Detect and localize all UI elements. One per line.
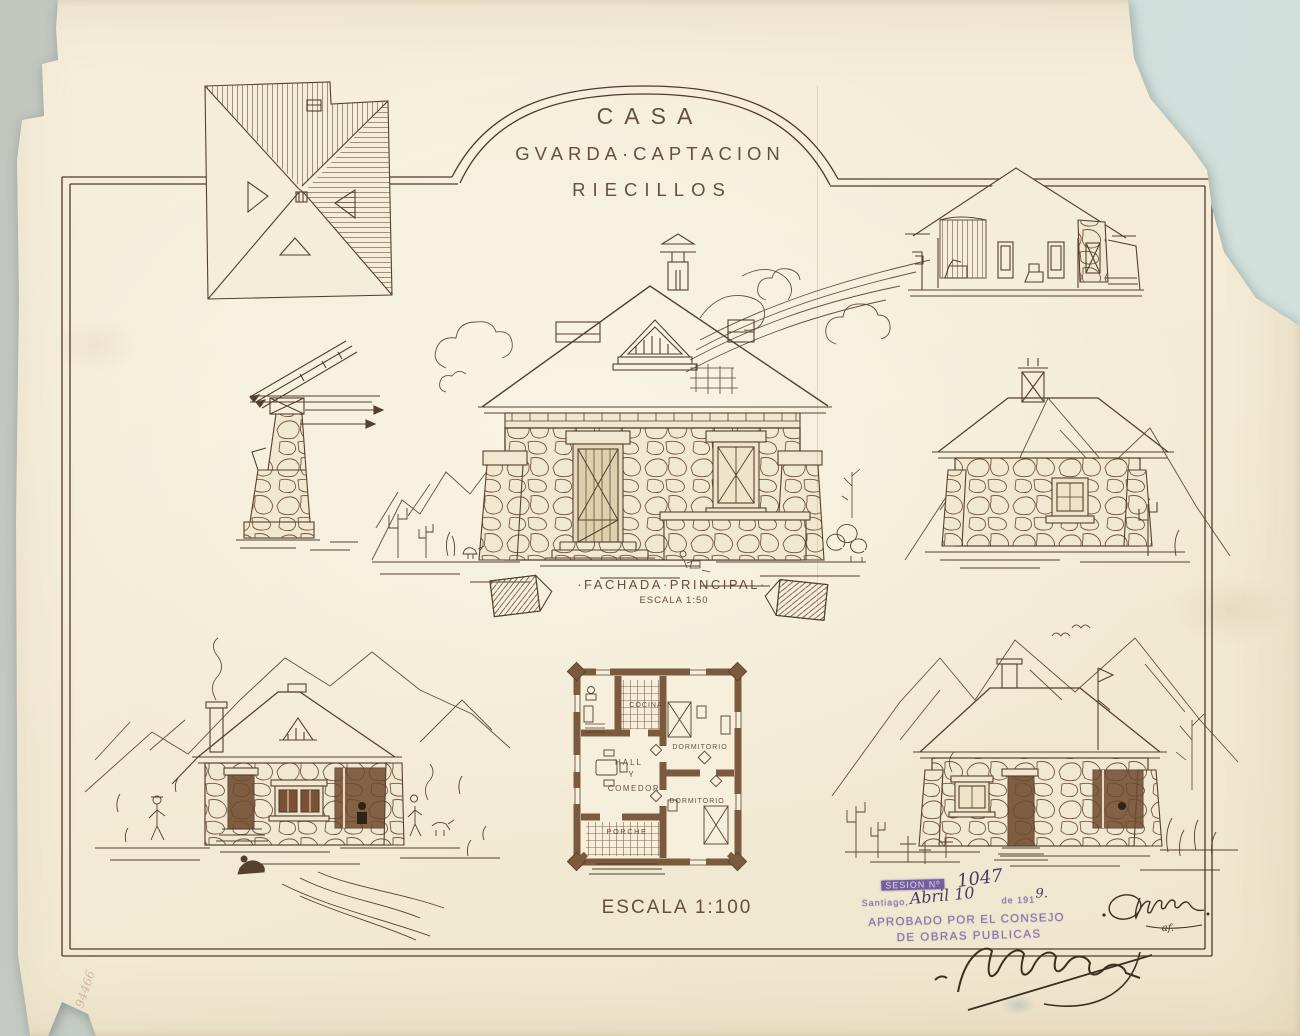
roof-plan-drawing [205, 82, 392, 299]
rear-elevation-drawing [85, 638, 510, 940]
room-label-hall-1: HALL [615, 758, 643, 767]
side-elevation-drawing [905, 358, 1230, 568]
sheet-title-line1: CASA [597, 103, 704, 130]
signature-initials-note: af. [1162, 923, 1175, 934]
room-label-kitchen: COCINA [629, 702, 662, 709]
sheet-title-line3: RIECILLOS [572, 179, 732, 201]
sheet-title-line2: GVARDA·CAPTACION [515, 143, 784, 165]
approval-signature [935, 949, 1152, 1010]
scanned-sheet: CASA GVARDA·CAPTACION RIECILLOS ·FACHADA… [0, 0, 1300, 1036]
room-label-hall-2: Y [628, 770, 633, 779]
paper-crease [817, 86, 818, 606]
stamp-approval-line1: APROBADO POR EL CONSEJO [868, 912, 1065, 929]
stamp-year-handwritten: 9. [1035, 886, 1048, 901]
architect-signature [1102, 892, 1209, 928]
stamp-year-printed: de 191 [1002, 895, 1036, 906]
room-label-bedroom-top: DORMITORIO [672, 744, 727, 751]
approval-stamp: SESION Nº 1047 Santiago, Abril 10 de 191… [859, 869, 1105, 955]
stamp-city: Santiago, [862, 897, 909, 908]
room-label-hall-3: COMEDOR [608, 784, 660, 793]
stamp-approval-line2: DE OBRAS PUBLICAS [897, 928, 1042, 944]
paper-sheet: CASA GVARDA·CAPTACION RIECILLOS ·FACHADA… [0, 0, 1300, 1036]
plan-scale-caption: ESCALA 1:100 [602, 897, 753, 919]
room-label-porch: PORCHE [606, 827, 647, 836]
floor-plan-drawing [567, 662, 746, 874]
facade-scale-caption: ESCALA 1:50 [639, 595, 708, 606]
perspective-elevation-drawing [832, 625, 1238, 870]
paper-wrapper: CASA GVARDA·CAPTACION RIECILLOS ·FACHADA… [0, 0, 1300, 1036]
facade-caption: ·FACHADA·PRINCIPAL· [577, 577, 767, 592]
flume-trestle-drawing [236, 341, 383, 550]
room-label-bedroom-bottom: DORMITORIO [669, 798, 724, 805]
main-facade-drawing [372, 234, 930, 620]
